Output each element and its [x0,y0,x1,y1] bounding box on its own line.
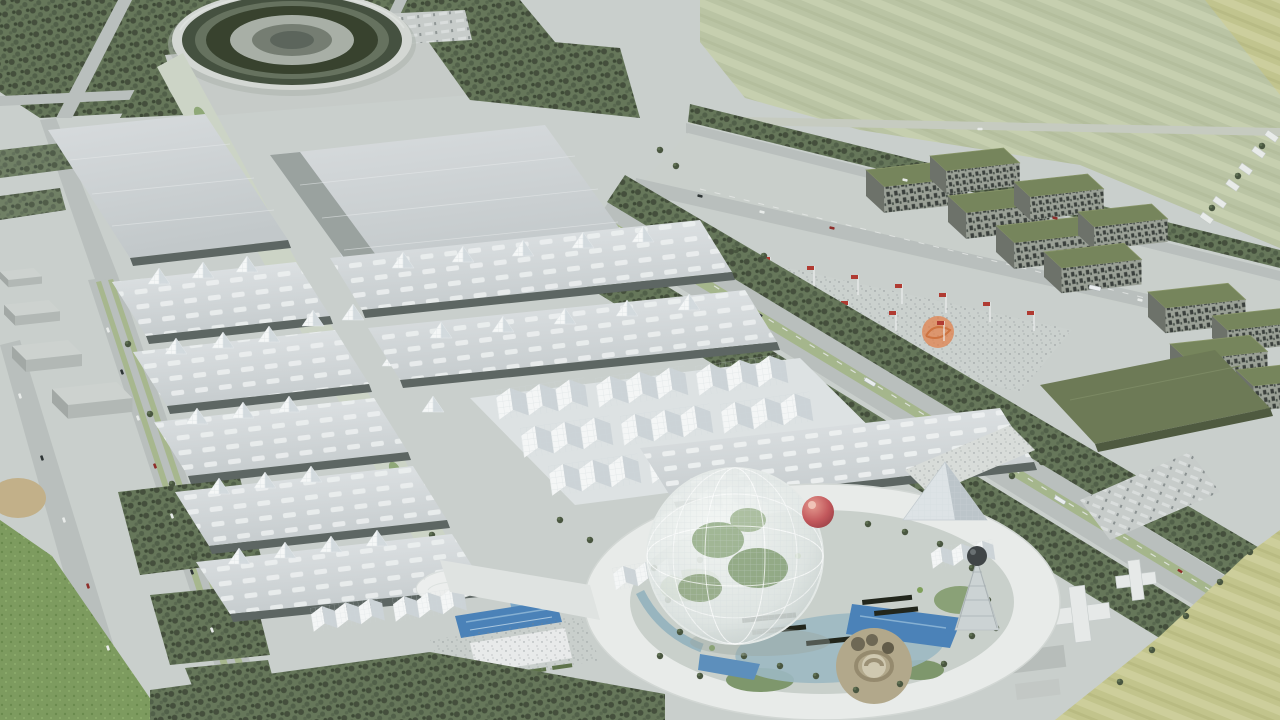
render-image [0,0,1280,720]
red-sphere [802,496,834,528]
aerial-render [0,0,1280,720]
rock-garden [836,628,912,704]
orange-pavilion [922,316,954,348]
